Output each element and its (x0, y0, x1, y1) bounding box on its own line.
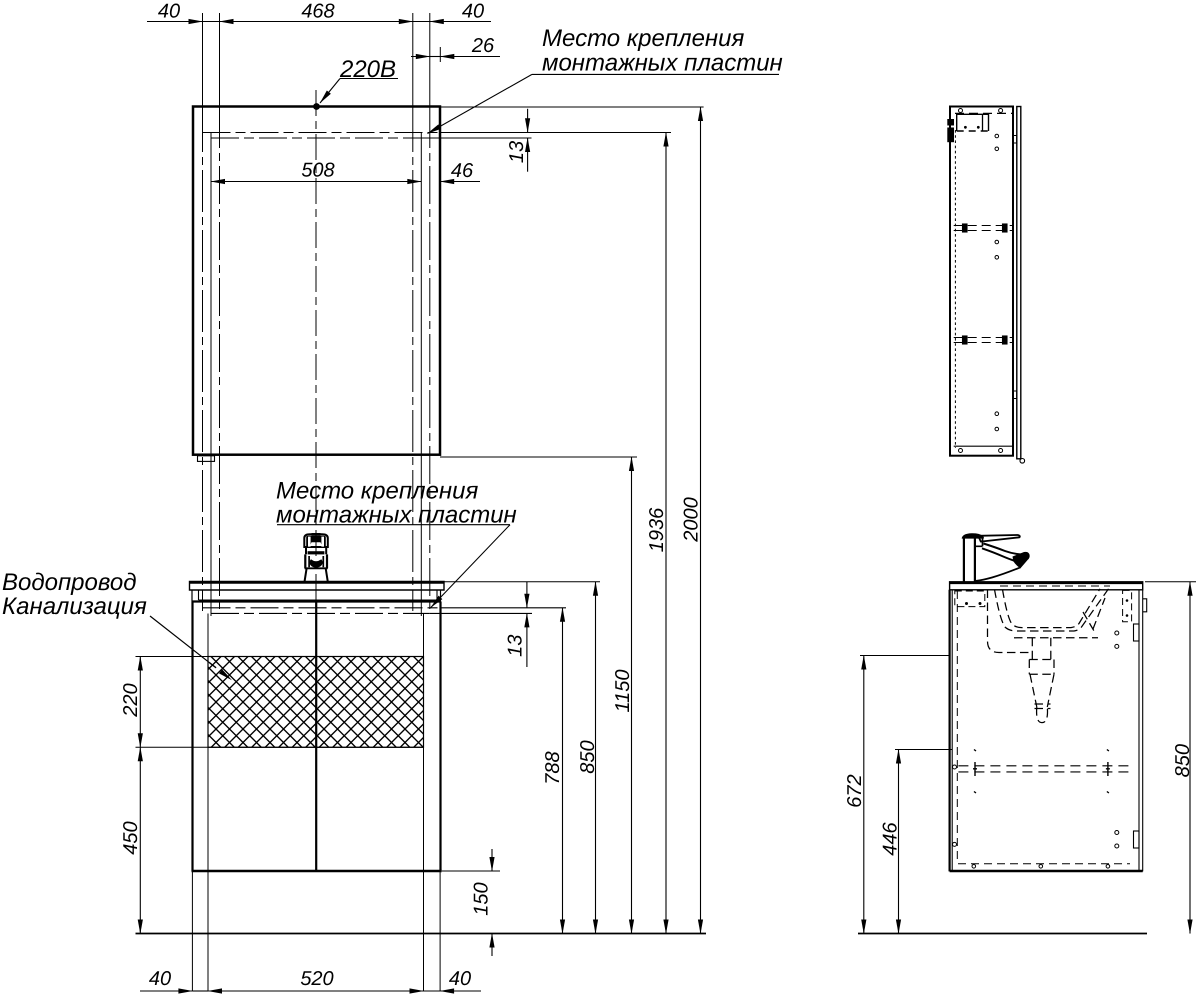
svg-text:Место крепления: Место крепления (276, 478, 478, 505)
svg-text:150: 150 (471, 882, 493, 915)
svg-text:13: 13 (505, 635, 527, 657)
svg-text:1936: 1936 (646, 507, 668, 552)
svg-text:468: 468 (301, 1, 334, 23)
svg-text:1150: 1150 (612, 669, 634, 712)
svg-text:40: 40 (462, 1, 484, 23)
svg-text:2000: 2000 (681, 497, 703, 543)
svg-text:520: 520 (300, 968, 333, 990)
svg-text:Место крепления: Место крепления (542, 25, 744, 52)
svg-text:монтажных пластин: монтажных пластин (542, 50, 783, 77)
svg-text:672: 672 (844, 774, 866, 807)
svg-text:450: 450 (120, 821, 142, 854)
svg-text:40: 40 (449, 968, 471, 990)
svg-text:40: 40 (149, 968, 171, 990)
svg-text:Водопровод: Водопровод (2, 569, 136, 596)
svg-text:13: 13 (506, 141, 528, 163)
svg-text:220В: 220В (339, 56, 396, 83)
svg-text:850: 850 (1172, 744, 1194, 777)
svg-text:40: 40 (158, 1, 180, 23)
svg-text:26: 26 (471, 35, 495, 57)
svg-text:508: 508 (301, 160, 334, 182)
svg-text:46: 46 (451, 160, 474, 182)
svg-text:850: 850 (577, 740, 599, 773)
svg-text:446: 446 (880, 821, 902, 855)
svg-text:788: 788 (542, 751, 564, 784)
svg-text:220: 220 (120, 683, 142, 717)
svg-text:Канализация: Канализация (2, 593, 147, 620)
